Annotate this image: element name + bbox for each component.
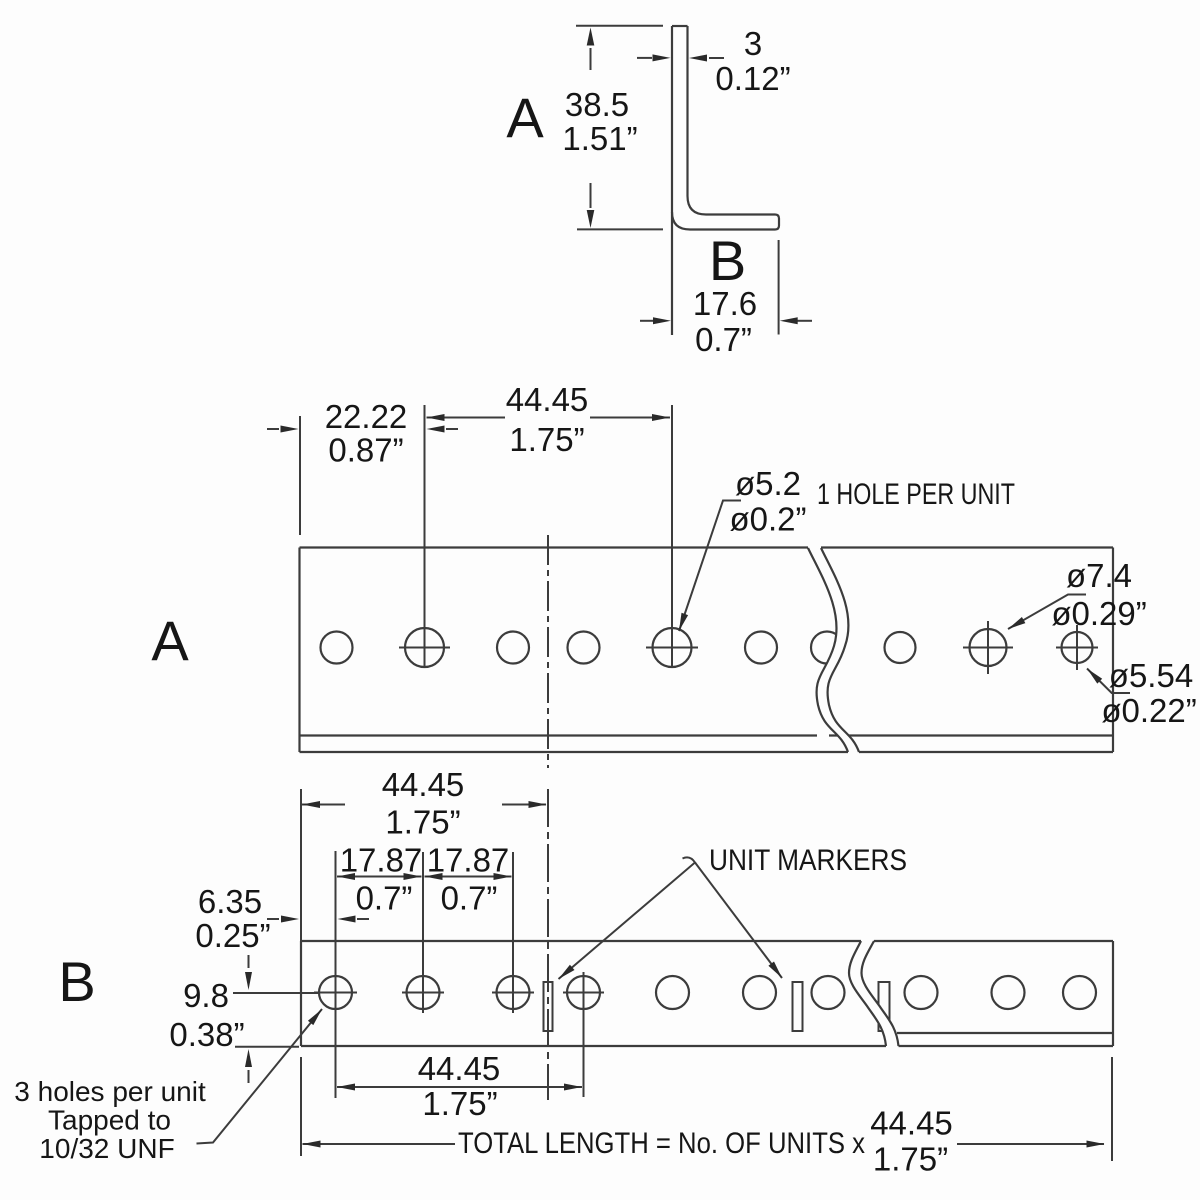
svg-text:B: B <box>709 229 746 292</box>
svg-text:1 HOLE PER UNIT: 1 HOLE PER UNIT <box>817 478 1015 511</box>
svg-text:0.12”: 0.12” <box>715 60 790 97</box>
svg-text:ø5.2: ø5.2 <box>735 465 801 502</box>
svg-text:ø0.29”: ø0.29” <box>1051 595 1146 632</box>
svg-text:A: A <box>151 609 189 672</box>
svg-text:17.87: 17.87 <box>340 842 423 879</box>
svg-text:17.87: 17.87 <box>427 842 510 879</box>
svg-text:22.22: 22.22 <box>325 398 408 435</box>
svg-text:44.45: 44.45 <box>506 381 589 418</box>
svg-text:44.45: 44.45 <box>418 1050 501 1087</box>
svg-text:ø5.54: ø5.54 <box>1109 657 1193 694</box>
svg-text:44.45: 44.45 <box>870 1105 953 1142</box>
svg-text:0.25”: 0.25” <box>195 917 270 954</box>
svg-text:0.87”: 0.87” <box>328 432 403 469</box>
svg-text:1.75”: 1.75” <box>873 1141 948 1178</box>
svg-text:1.75”: 1.75” <box>509 421 584 458</box>
svg-text:B: B <box>58 950 95 1013</box>
svg-text:Tapped to: Tapped to <box>48 1105 171 1136</box>
svg-text:38.5: 38.5 <box>565 86 629 123</box>
svg-text:1.51”: 1.51” <box>562 120 637 157</box>
svg-text:44.45: 44.45 <box>382 766 465 803</box>
svg-text:0.38”: 0.38” <box>169 1016 244 1053</box>
svg-text:6.35: 6.35 <box>198 883 262 920</box>
svg-text:3: 3 <box>744 25 762 62</box>
svg-text:1.75”: 1.75” <box>422 1085 497 1122</box>
svg-text:9.8: 9.8 <box>183 977 229 1014</box>
svg-text:0.7”: 0.7” <box>356 880 413 917</box>
svg-text:TOTAL LENGTH = No. OF UNITS x: TOTAL LENGTH = No. OF UNITS x <box>458 1127 865 1160</box>
svg-text:ø7.4: ø7.4 <box>1066 557 1132 594</box>
svg-text:A: A <box>506 86 544 149</box>
svg-text:1.75”: 1.75” <box>385 804 460 841</box>
svg-text:17.6: 17.6 <box>693 285 757 322</box>
svg-text:UNIT MARKERS: UNIT MARKERS <box>709 844 907 877</box>
svg-text:0.7”: 0.7” <box>441 880 498 917</box>
svg-text:3 holes per unit: 3 holes per unit <box>14 1076 206 1107</box>
svg-text:ø0.2”: ø0.2” <box>729 501 806 538</box>
svg-text:10/32 UNF: 10/32 UNF <box>39 1133 174 1164</box>
svg-text:ø0.22”: ø0.22” <box>1101 692 1196 729</box>
svg-text:0.7”: 0.7” <box>695 321 752 358</box>
